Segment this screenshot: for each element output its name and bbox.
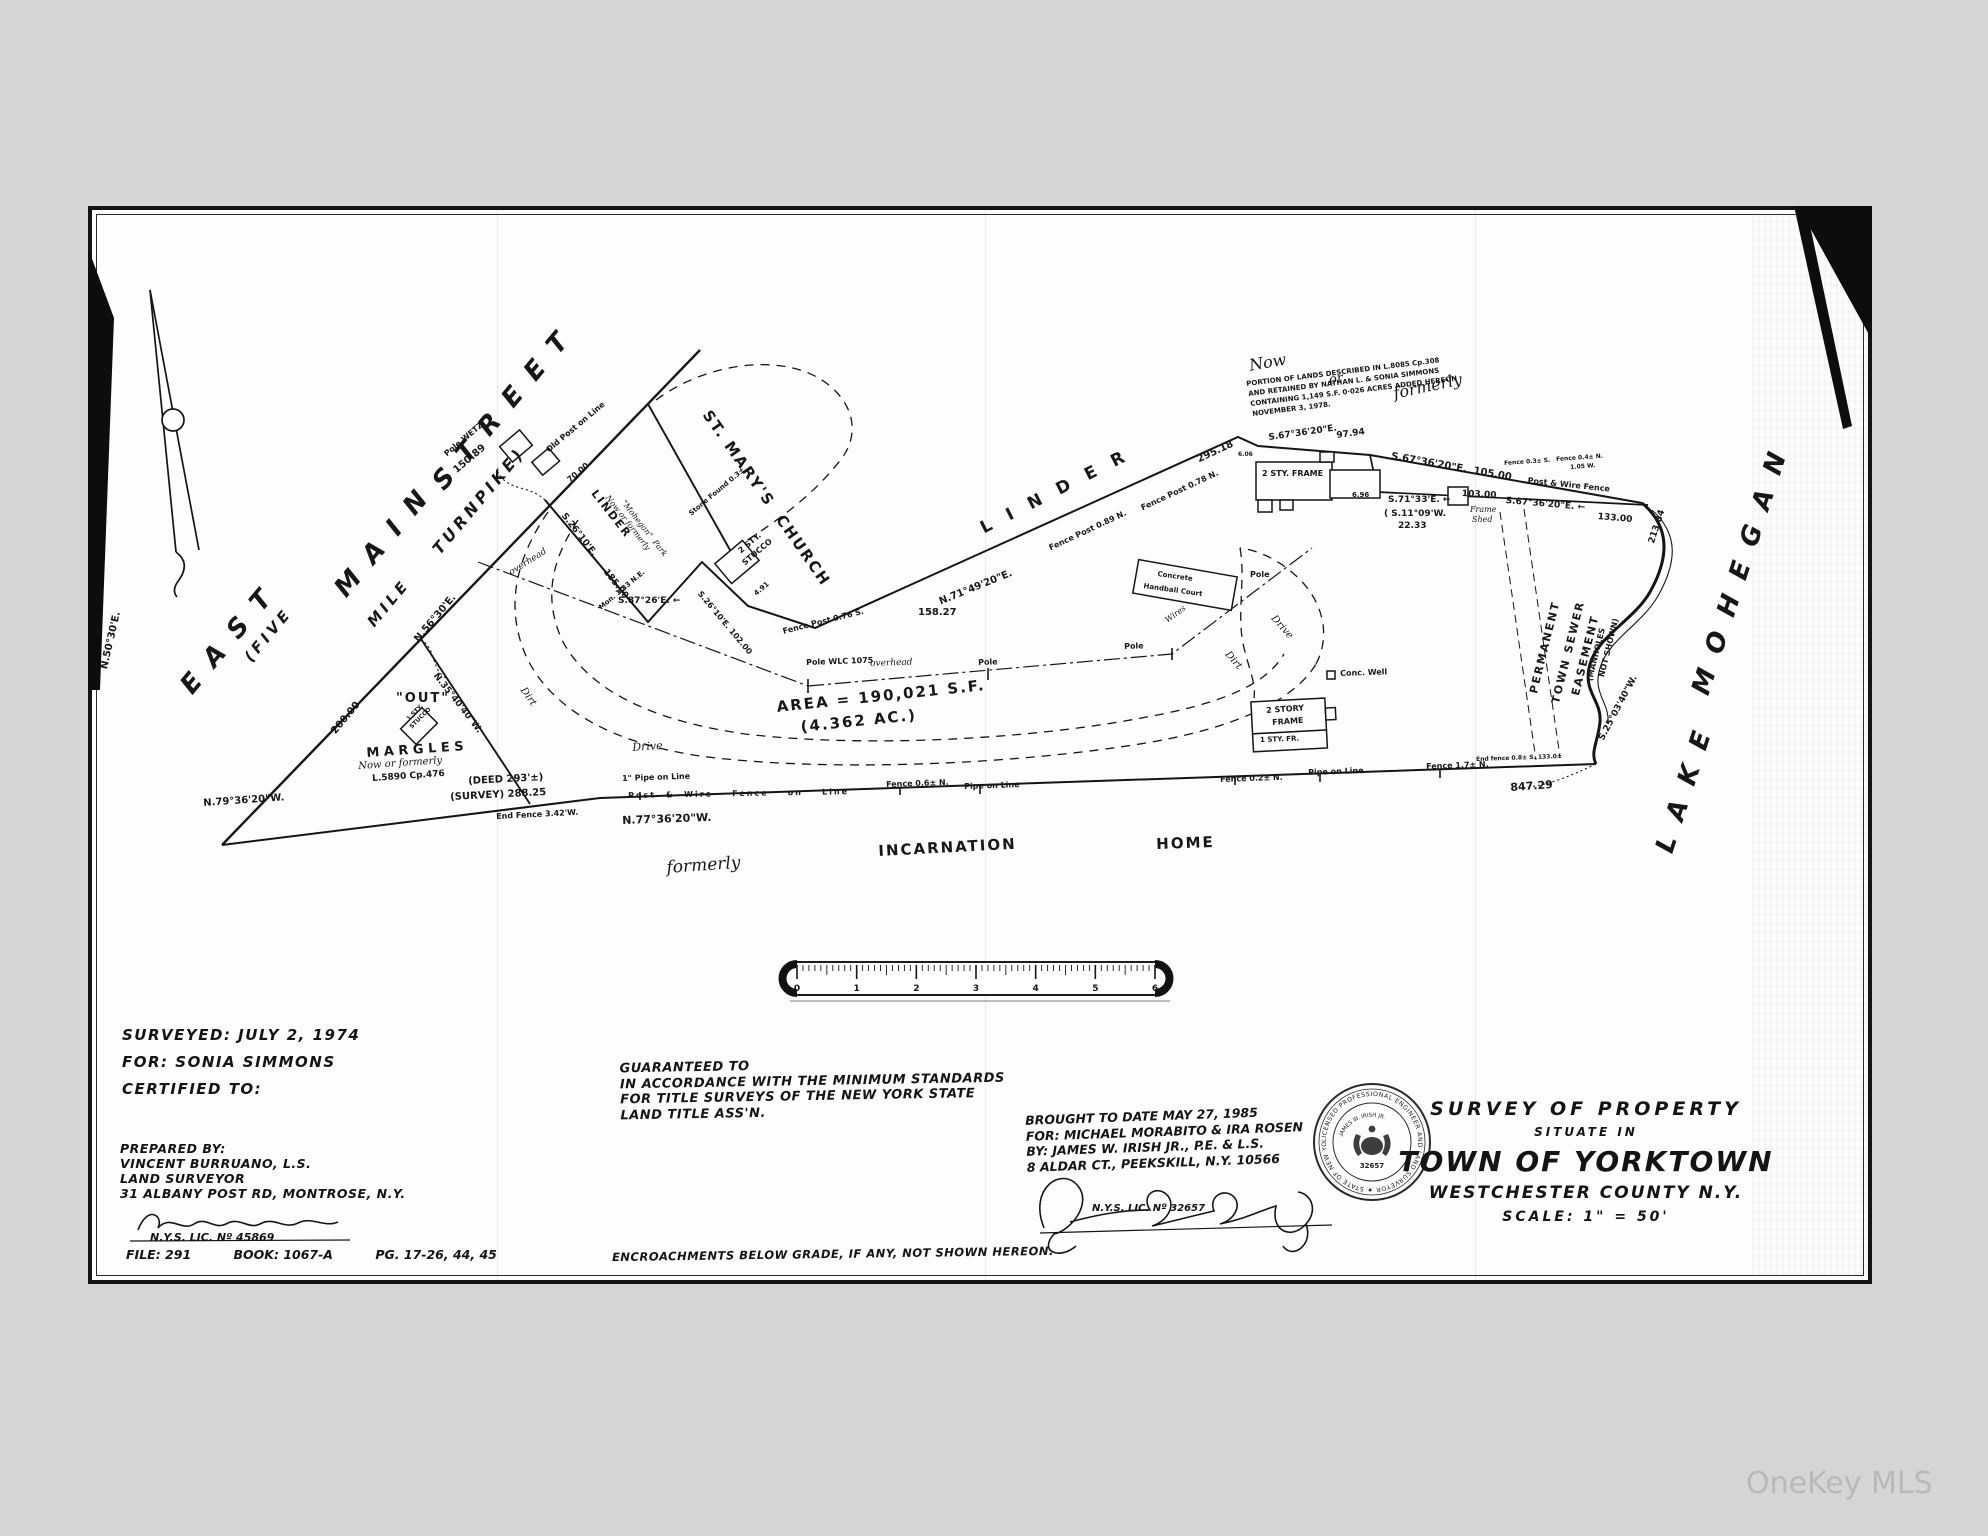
building-2sty-frame — [1256, 462, 1332, 500]
ruler-number: 1 — [854, 984, 860, 994]
seal-name-text: JAMES W. IRISH JR. — [1338, 1113, 1386, 1138]
property-boundary — [222, 437, 1648, 845]
ruler-number: 4 — [1033, 984, 1039, 994]
file-reference-line: FILE: 291 BOOK: 1067-A PG. 17-26, 44, 45 — [126, 1247, 535, 1262]
handball-court — [1133, 560, 1237, 611]
seal-license-number: 32657 — [1360, 1162, 1384, 1170]
watermark: OneKey MLS — [1746, 1466, 1933, 1501]
driveway-dashed — [515, 365, 1324, 765]
scan-artifacts — [88, 206, 1872, 690]
surveyed-line: FOR: SONIA SIMMONS — [122, 1049, 360, 1076]
building-2sty-stucco — [715, 540, 759, 583]
prepared-by-block: PREPARED BY:VINCENT BURRUANO, L.S.LAND S… — [120, 1141, 406, 1201]
surveyed-block: SURVEYED: JULY 2, 1974FOR: SONIA SIMMONS… — [122, 1022, 360, 1103]
division-lines — [421, 404, 730, 804]
sewer-easement-lines — [1500, 509, 1560, 760]
title-block: SURVEY OF PROPERTY SITUATE IN TOWN OF YO… — [1388, 1098, 1784, 1225]
building-2story-frame-house — [1251, 698, 1338, 752]
title-county: WESTCHESTER COUNTY N.Y. — [1388, 1183, 1784, 1203]
buildings — [401, 430, 1468, 752]
surveyed-line: CERTIFIED TO: — [122, 1076, 360, 1103]
prepared-line: LAND SURVEYOR — [120, 1171, 406, 1186]
title-survey-of-property: SURVEY OF PROPERTY — [1388, 1098, 1784, 1120]
file-number: FILE: 291 — [126, 1247, 191, 1262]
ruler-number: 5 — [1092, 984, 1098, 994]
brought-to-date-block: BROUGHT TO DATE MAY 27, 1985FOR: MICHAEL… — [1025, 1103, 1304, 1175]
prepared-line: PREPARED BY: — [120, 1141, 406, 1156]
book-number: BOOK: 1067-A — [234, 1247, 333, 1262]
building-1sty-stucco — [401, 708, 438, 745]
north-arrow-icon — [150, 290, 199, 597]
title-scale: SCALE: 1" = 50' — [1388, 1209, 1784, 1225]
license-number-irish: N.Y.S. LIC. Nº 32657 — [1092, 1203, 1205, 1214]
ruler-number: 3 — [973, 984, 979, 994]
lake-shoreline — [1588, 503, 1672, 764]
ruler-number: 6 — [1152, 984, 1158, 994]
scale-ruler: 0123456 — [780, 962, 1172, 1001]
prepared-line: 31 ALBANY POST RD, MONTROSE, N.Y. — [120, 1186, 406, 1201]
survey-linework: 0123456 LICENSED PROFESSIONAL ENGINEER A… — [0, 0, 1988, 1536]
guarantee-block: GUARANTEED TOIN ACCORDANCE WITH THE MINI… — [619, 1055, 1005, 1124]
ruler-number: 2 — [913, 984, 919, 994]
surveyed-line: SURVEYED: JULY 2, 1974 — [122, 1022, 360, 1049]
concrete-well — [1327, 671, 1335, 679]
page-numbers: PG. 17-26, 44, 45 — [375, 1247, 497, 1262]
prepared-line: VINCENT BURRUANO, L.S. — [120, 1156, 406, 1171]
seal-coat-of-arms — [1353, 1126, 1390, 1156]
license-number-burruano: N.Y.S. LIC. Nº 45869 — [150, 1231, 274, 1244]
building-frame-shed — [1448, 487, 1468, 505]
title-town: TOWN OF YORKTOWN — [1388, 1145, 1784, 1178]
signature-irish — [1040, 1178, 1332, 1253]
scanned-survey-page: { "watermark": "OneKey MLS", "title_bloc… — [0, 0, 1988, 1536]
ruler-number: 0 — [794, 984, 800, 994]
title-situate-in: SITUATE IN — [1388, 1125, 1784, 1139]
